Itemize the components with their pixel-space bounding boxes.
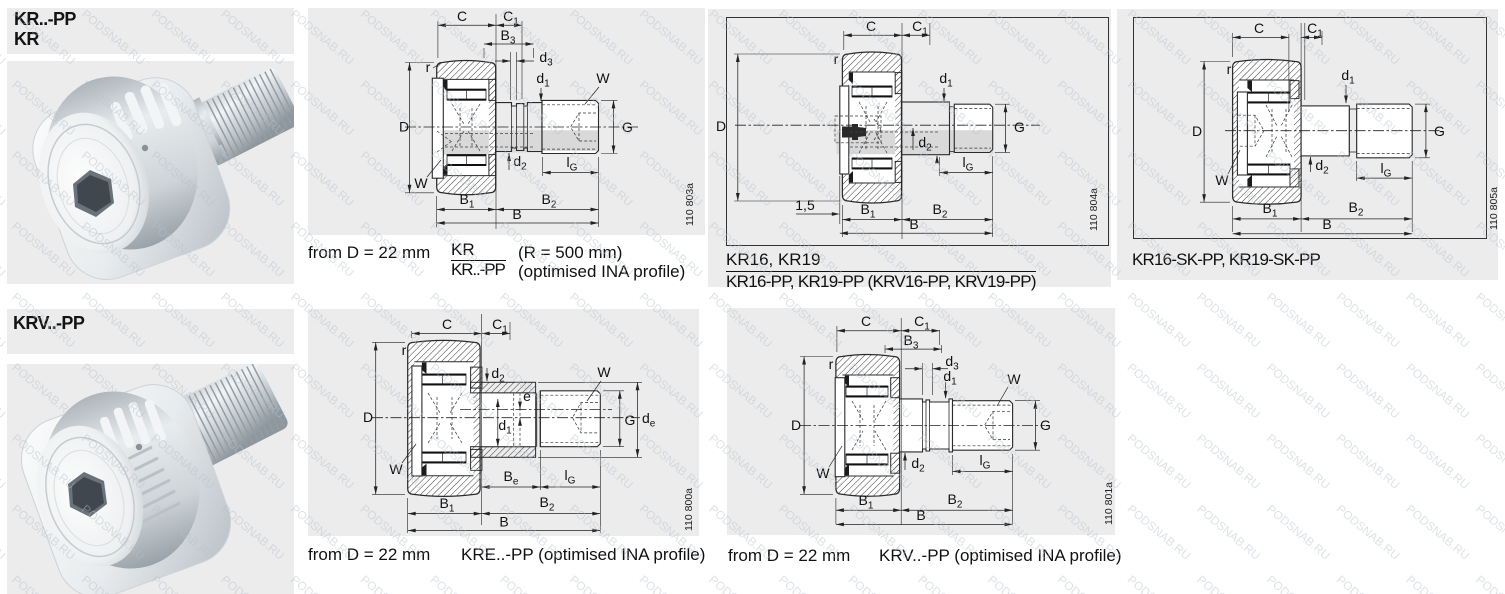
svg-text:e: e — [523, 388, 531, 404]
svg-text:PODSNAB.RU: PODSNAB.RU — [1264, 360, 1333, 421]
svg-text:PODSNAB.RU: PODSNAB.RU — [1194, 572, 1263, 594]
svg-text:PODSNAB.RU: PODSNAB.RU — [1194, 431, 1263, 492]
svg-text:d1: d1 — [1341, 67, 1355, 87]
svg-text:PODSNAB.RU: PODSNAB.RU — [1473, 431, 1505, 492]
svg-text:r: r — [426, 59, 431, 75]
svg-text:PODSNAB.RU: PODSNAB.RU — [288, 572, 357, 594]
svg-text:PODSNAB.RU: PODSNAB.RU — [706, 572, 775, 594]
svg-text:lG: lG — [567, 154, 578, 174]
svg-text:C: C — [442, 316, 452, 332]
svg-text:G: G — [622, 119, 633, 135]
svg-text:D: D — [1192, 123, 1202, 139]
svg-text:PODSNAB.RU: PODSNAB.RU — [1125, 360, 1194, 421]
svg-text:PODSNAB.RU: PODSNAB.RU — [915, 572, 984, 594]
svg-text:W: W — [389, 461, 403, 477]
svg-text:B2: B2 — [933, 201, 948, 221]
svg-text:B: B — [1322, 216, 1331, 232]
svg-text:lG: lG — [1381, 160, 1392, 180]
svg-text:d2: d2 — [513, 153, 527, 173]
svg-text:PODSNAB.RU: PODSNAB.RU — [1264, 572, 1333, 594]
svg-text:B: B — [499, 514, 508, 530]
svg-text:B1: B1 — [861, 201, 876, 221]
svg-text:PODSNAB.RU: PODSNAB.RU — [1334, 502, 1403, 563]
svg-text:B: B — [916, 507, 925, 523]
svg-text:PODSNAB.RU: PODSNAB.RU — [1473, 360, 1505, 421]
svg-text:D: D — [791, 417, 801, 433]
svg-text:PODSNAB.RU: PODSNAB.RU — [567, 572, 636, 594]
svg-text:PODSNAB.RU: PODSNAB.RU — [1264, 290, 1333, 351]
svg-text:C: C — [866, 18, 876, 34]
svg-text:d1: d1 — [939, 70, 953, 90]
svg-text:D: D — [363, 409, 373, 425]
svg-text:d3: d3 — [539, 49, 553, 69]
svg-text:PODSNAB.RU: PODSNAB.RU — [1194, 290, 1263, 351]
svg-text:C1: C1 — [492, 316, 508, 336]
svg-text:r: r — [829, 356, 834, 372]
svg-text:PODSNAB.RU: PODSNAB.RU — [1055, 572, 1124, 594]
svg-text:W: W — [1215, 172, 1229, 188]
svg-text:D: D — [716, 118, 726, 134]
svg-text:110 801a: 110 801a — [1103, 482, 1115, 525]
svg-text:PODSNAB.RU: PODSNAB.RU — [1334, 431, 1403, 492]
svg-text:B: B — [909, 216, 918, 232]
svg-text:PODSNAB.RU: PODSNAB.RU — [1473, 502, 1505, 563]
svg-text:PODSNAB.RU: PODSNAB.RU — [1403, 431, 1472, 492]
svg-text:B3: B3 — [501, 27, 516, 47]
svg-text:PODSNAB.RU: PODSNAB.RU — [846, 572, 915, 594]
svg-text:B2: B2 — [1349, 199, 1364, 219]
svg-text:PODSNAB.RU: PODSNAB.RU — [1194, 502, 1263, 563]
svg-text:B: B — [512, 206, 521, 222]
svg-text:G: G — [1434, 123, 1445, 139]
svg-text:de: de — [642, 410, 656, 430]
svg-text:110 803a: 110 803a — [684, 183, 696, 226]
svg-text:r: r — [834, 51, 839, 67]
svg-text:PODSNAB.RU: PODSNAB.RU — [358, 572, 427, 594]
svg-text:B2: B2 — [540, 494, 555, 514]
svg-text:B3: B3 — [904, 332, 919, 352]
svg-text:PODSNAB.RU: PODSNAB.RU — [1403, 290, 1472, 351]
svg-text:PODSNAB.RU: PODSNAB.RU — [637, 572, 706, 594]
svg-text:PODSNAB.RU: PODSNAB.RU — [1194, 360, 1263, 421]
svg-text:W: W — [816, 465, 830, 481]
svg-text:C: C — [861, 313, 871, 329]
svg-text:lG: lG — [980, 452, 991, 472]
svg-text:B2: B2 — [948, 491, 963, 511]
svg-text:Be: Be — [504, 468, 519, 488]
svg-text:PODSNAB.RU: PODSNAB.RU — [1125, 572, 1194, 594]
svg-text:PODSNAB.RU: PODSNAB.RU — [1264, 431, 1333, 492]
svg-text:PODSNAB.RU: PODSNAB.RU — [428, 572, 497, 594]
svg-text:C: C — [457, 8, 467, 24]
svg-text:PODSNAB.RU: PODSNAB.RU — [1125, 431, 1194, 492]
svg-text:C1: C1 — [912, 18, 928, 38]
svg-text:d2: d2 — [1315, 157, 1329, 177]
svg-text:D: D — [399, 119, 409, 135]
svg-text:C: C — [1254, 20, 1264, 36]
svg-text:C1: C1 — [914, 313, 930, 333]
svg-text:PODSNAB.RU: PODSNAB.RU — [1403, 572, 1472, 594]
svg-text:B1: B1 — [440, 495, 455, 515]
svg-text:1,5: 1,5 — [795, 197, 815, 213]
svg-text:G: G — [1040, 417, 1051, 433]
svg-text:G: G — [1014, 119, 1025, 135]
svg-text:PODSNAB.RU: PODSNAB.RU — [1403, 360, 1472, 421]
svg-text:PODSNAB.RU: PODSNAB.RU — [1334, 572, 1403, 594]
svg-text:W: W — [1007, 371, 1021, 387]
svg-text:B2: B2 — [542, 191, 557, 211]
svg-text:PODSNAB.RU: PODSNAB.RU — [776, 572, 845, 594]
svg-text:PODSNAB.RU: PODSNAB.RU — [1264, 502, 1333, 563]
svg-text:lG: lG — [963, 154, 974, 174]
svg-text:110 800a: 110 800a — [683, 488, 695, 531]
svg-text:PODSNAB.RU: PODSNAB.RU — [1473, 290, 1505, 351]
svg-text:d1: d1 — [536, 70, 550, 90]
svg-text:C1: C1 — [503, 8, 519, 28]
svg-text:110 805a: 110 805a — [1488, 187, 1498, 230]
svg-text:PODSNAB.RU: PODSNAB.RU — [1403, 502, 1472, 563]
svg-text:G: G — [625, 412, 636, 428]
svg-text:PODSNAB.RU: PODSNAB.RU — [1125, 502, 1194, 563]
svg-text:d2: d2 — [491, 365, 505, 385]
svg-text:PODSNAB.RU: PODSNAB.RU — [1334, 360, 1403, 421]
svg-text:W: W — [596, 70, 610, 86]
svg-text:PODSNAB.RU: PODSNAB.RU — [1473, 572, 1505, 594]
svg-text:r: r — [1227, 61, 1232, 77]
svg-text:110 804a: 110 804a — [1088, 188, 1100, 231]
svg-text:PODSNAB.RU: PODSNAB.RU — [497, 572, 566, 594]
svg-text:lG: lG — [565, 467, 576, 487]
svg-text:W: W — [597, 364, 611, 380]
svg-text:PODSNAB.RU: PODSNAB.RU — [1125, 290, 1194, 351]
svg-text:PODSNAB.RU: PODSNAB.RU — [985, 572, 1054, 594]
svg-text:PODSNAB.RU: PODSNAB.RU — [1334, 290, 1403, 351]
svg-text:d2: d2 — [911, 455, 925, 475]
svg-text:W: W — [414, 175, 428, 191]
svg-text:r: r — [402, 342, 407, 358]
